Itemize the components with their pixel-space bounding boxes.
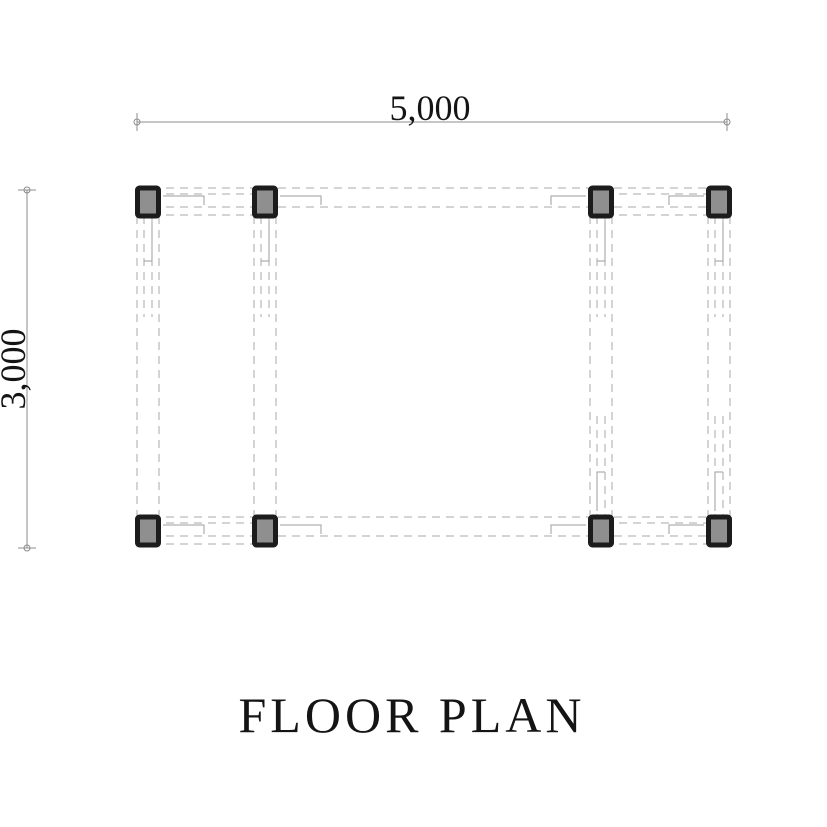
beam-step-line bbox=[597, 472, 605, 511]
beam-step-line bbox=[163, 525, 204, 534]
beam-step-line bbox=[669, 525, 704, 534]
beam-step-line bbox=[144, 222, 152, 261]
dimension-height-label: 3,000 bbox=[0, 329, 33, 410]
column bbox=[138, 188, 159, 216]
columns-layer bbox=[138, 188, 730, 545]
beam-step-line bbox=[551, 196, 586, 205]
dimension-width-label: 5,000 bbox=[390, 88, 471, 128]
column bbox=[255, 188, 276, 216]
beam-step-line bbox=[261, 222, 269, 261]
column bbox=[591, 188, 612, 216]
column bbox=[709, 188, 730, 216]
beam-step-line bbox=[715, 472, 723, 511]
drawing-title: FLOOR PLAN bbox=[239, 687, 586, 743]
dimensions-layer bbox=[18, 113, 730, 551]
beams-layer bbox=[137, 188, 730, 544]
drawing-sheet: 5,000 3,000 FLOOR PLAN bbox=[0, 0, 827, 827]
column bbox=[591, 517, 612, 545]
floor-plan-drawing: 5,000 3,000 FLOOR PLAN bbox=[0, 0, 827, 827]
beam-step-line bbox=[669, 196, 704, 205]
beam-step-line bbox=[551, 525, 586, 534]
beam-step-line bbox=[597, 222, 605, 261]
column bbox=[255, 517, 276, 545]
column bbox=[138, 517, 159, 545]
beam-step-line bbox=[715, 222, 723, 261]
beam-step-line bbox=[280, 196, 321, 205]
column bbox=[709, 517, 730, 545]
beam-step-line bbox=[163, 196, 204, 205]
beam-step-line bbox=[280, 525, 321, 534]
